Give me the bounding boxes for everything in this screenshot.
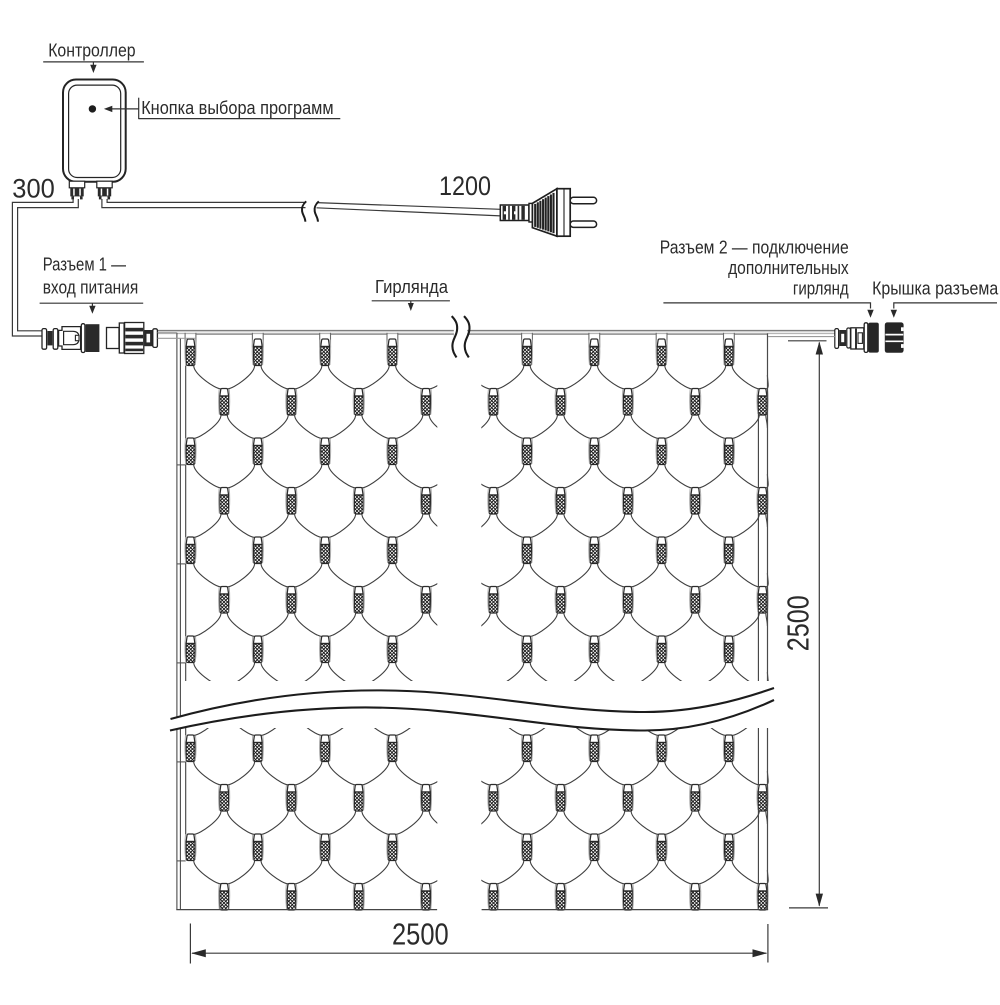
svg-text:Разъем 1 —: Разъем 1 — xyxy=(43,254,127,275)
svg-text:Крышка разъема: Крышка разъема xyxy=(872,278,999,299)
svg-text:Гирлянда: Гирлянда xyxy=(375,276,449,297)
svg-text:300: 300 xyxy=(12,173,55,203)
svg-text:Разъем 2 — подключение: Разъем 2 — подключение xyxy=(660,237,849,258)
svg-text:2500: 2500 xyxy=(782,595,815,651)
svg-text:Контроллер: Контроллер xyxy=(48,39,135,60)
svg-text:2500: 2500 xyxy=(392,919,449,952)
svg-text:гирлянд: гирлянд xyxy=(793,278,849,299)
svg-text:вход питания: вход питания xyxy=(43,276,139,297)
svg-text:Кнопка выбора программ: Кнопка выбора программ xyxy=(141,97,333,118)
svg-text:дополнительных: дополнительных xyxy=(728,257,849,278)
svg-text:1200: 1200 xyxy=(439,171,491,201)
